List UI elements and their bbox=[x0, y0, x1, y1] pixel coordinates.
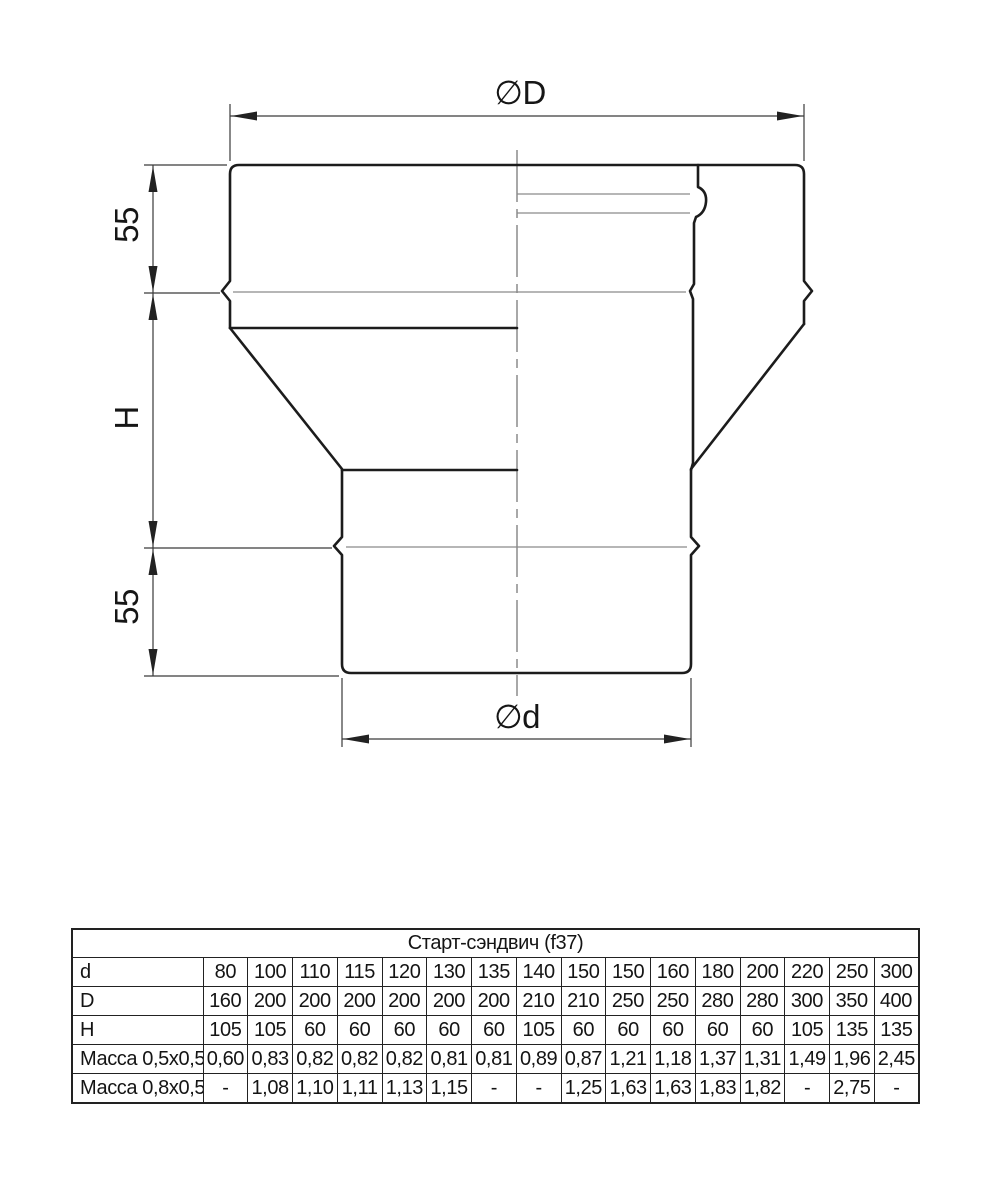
table-cell-H-2: 60 bbox=[293, 1016, 338, 1045]
arrow-outer-right bbox=[777, 112, 803, 121]
dim-label-outer-diameter: ∅D bbox=[494, 74, 546, 111]
table-cell-d-3: 115 bbox=[337, 958, 382, 987]
row-label-m05: Масса 0,5x0,5 bbox=[72, 1045, 203, 1074]
table-cell-m08-9: 1,63 bbox=[606, 1074, 651, 1104]
table-cell-H-15: 135 bbox=[874, 1016, 919, 1045]
table-cell-m08-14: 2,75 bbox=[830, 1074, 875, 1104]
arrow-outer-left bbox=[231, 112, 257, 121]
table-row-D: D160200200200200200200210210250250280280… bbox=[72, 987, 919, 1016]
table-cell-m05-4: 0,82 bbox=[382, 1045, 427, 1074]
dim-label-middle-height: H bbox=[108, 406, 145, 429]
table-cell-m08-15: - bbox=[874, 1074, 919, 1104]
seam-lines bbox=[233, 194, 690, 547]
table-cell-m05-15: 2,45 bbox=[874, 1045, 919, 1074]
table-cell-H-7: 105 bbox=[516, 1016, 561, 1045]
table-cell-d-1: 100 bbox=[248, 958, 293, 987]
table-cell-D-5: 200 bbox=[427, 987, 472, 1016]
table-cell-m08-5: 1,15 bbox=[427, 1074, 472, 1104]
table-cell-m05-3: 0,82 bbox=[337, 1045, 382, 1074]
table-row-H: H10510560606060601056060606060105135135 bbox=[72, 1016, 919, 1045]
table-cell-m05-11: 1,37 bbox=[695, 1045, 740, 1074]
table-cell-D-13: 300 bbox=[785, 987, 830, 1016]
arrow-inner-right bbox=[664, 735, 690, 744]
table-cell-d-2: 110 bbox=[293, 958, 338, 987]
datasheet-page: ∅D ∅d 55 H 55 Старт-сэндвич (f37)d801001… bbox=[0, 0, 995, 1200]
table-cell-H-10: 60 bbox=[651, 1016, 696, 1045]
table-cell-D-8: 210 bbox=[561, 987, 606, 1016]
table-cell-D-4: 200 bbox=[382, 987, 427, 1016]
inner-pipe-edge bbox=[690, 165, 706, 470]
dim-label-bottom-height: 55 bbox=[108, 589, 145, 625]
table-cell-H-8: 60 bbox=[561, 1016, 606, 1045]
table-cell-D-7: 210 bbox=[516, 987, 561, 1016]
row-label-D: D bbox=[72, 987, 203, 1016]
table-cell-m05-12: 1,31 bbox=[740, 1045, 785, 1074]
table-cell-m08-12: 1,82 bbox=[740, 1074, 785, 1104]
table-cell-m08-10: 1,63 bbox=[651, 1074, 696, 1104]
row-label-m08: Масса 0,8x0,5 bbox=[72, 1074, 203, 1104]
table-cell-m08-4: 1,13 bbox=[382, 1074, 427, 1104]
table-cell-m08-6: - bbox=[472, 1074, 517, 1104]
right-cone-edge bbox=[691, 324, 804, 469]
table-cell-d-6: 135 bbox=[472, 958, 517, 987]
table-cell-D-3: 200 bbox=[337, 987, 382, 1016]
table-cell-H-11: 60 bbox=[695, 1016, 740, 1045]
table-cell-m08-13: - bbox=[785, 1074, 830, 1104]
table-cell-m05-10: 1,18 bbox=[651, 1045, 696, 1074]
table-cell-d-11: 180 bbox=[695, 958, 740, 987]
table-cell-D-11: 280 bbox=[695, 987, 740, 1016]
table-cell-d-5: 130 bbox=[427, 958, 472, 987]
spec-table: Старт-сэндвич (f37)d80100110115120130135… bbox=[71, 928, 920, 1104]
table-cell-m05-7: 0,89 bbox=[516, 1045, 561, 1074]
left-cone-edge bbox=[230, 328, 342, 469]
table-cell-m05-2: 0,82 bbox=[293, 1045, 338, 1074]
table-cell-D-2: 200 bbox=[293, 987, 338, 1016]
table-title: Старт-сэндвич (f37) bbox=[72, 929, 919, 958]
table-cell-H-12: 60 bbox=[740, 1016, 785, 1045]
row-label-d: d bbox=[72, 958, 203, 987]
table-row-d: d801001101151201301351401501501601802002… bbox=[72, 958, 919, 987]
table-cell-m05-13: 1,49 bbox=[785, 1045, 830, 1074]
table-cell-H-4: 60 bbox=[382, 1016, 427, 1045]
arrow-h55top-down bbox=[149, 266, 158, 292]
spec-table-body: Старт-сэндвич (f37)d80100110115120130135… bbox=[72, 929, 919, 1103]
table-cell-m05-8: 0,87 bbox=[561, 1045, 606, 1074]
table-cell-m05-5: 0,81 bbox=[427, 1045, 472, 1074]
table-cell-m05-0: 0,60 bbox=[203, 1045, 248, 1074]
table-cell-D-12: 280 bbox=[740, 987, 785, 1016]
table-cell-D-14: 350 bbox=[830, 987, 875, 1016]
table-title-row: Старт-сэндвич (f37) bbox=[72, 929, 919, 958]
table-cell-H-5: 60 bbox=[427, 1016, 472, 1045]
table-cell-D-6: 200 bbox=[472, 987, 517, 1016]
table-cell-d-15: 300 bbox=[874, 958, 919, 987]
row-label-H: H bbox=[72, 1016, 203, 1045]
table-cell-H-3: 60 bbox=[337, 1016, 382, 1045]
table-row-m08: Масса 0,8x0,5-1,081,101,111,131,15--1,25… bbox=[72, 1074, 919, 1104]
technical-drawing: ∅D ∅d 55 H 55 bbox=[0, 0, 995, 880]
table-cell-D-10: 250 bbox=[651, 987, 696, 1016]
arrow-hmid-down bbox=[149, 521, 158, 547]
table-cell-d-7: 140 bbox=[516, 958, 561, 987]
table-cell-m08-2: 1,10 bbox=[293, 1074, 338, 1104]
table-cell-H-6: 60 bbox=[472, 1016, 517, 1045]
arrow-h55bot-up bbox=[149, 549, 158, 575]
table-row-m05: Масса 0,5x0,50,600,830,820,820,820,810,8… bbox=[72, 1045, 919, 1074]
arrow-h55bot-down bbox=[149, 649, 158, 675]
table-cell-m08-1: 1,08 bbox=[248, 1074, 293, 1104]
table-cell-d-0: 80 bbox=[203, 958, 248, 987]
table-cell-H-0: 105 bbox=[203, 1016, 248, 1045]
table-cell-H-1: 105 bbox=[248, 1016, 293, 1045]
table-cell-m05-6: 0,81 bbox=[472, 1045, 517, 1074]
table-cell-d-10: 160 bbox=[651, 958, 696, 987]
table-cell-D-0: 160 bbox=[203, 987, 248, 1016]
table-cell-D-15: 400 bbox=[874, 987, 919, 1016]
table-cell-D-1: 200 bbox=[248, 987, 293, 1016]
table-cell-d-8: 150 bbox=[561, 958, 606, 987]
table-cell-m05-14: 1,96 bbox=[830, 1045, 875, 1074]
table-cell-m05-1: 0,83 bbox=[248, 1045, 293, 1074]
table-cell-m08-11: 1,83 bbox=[695, 1074, 740, 1104]
table-cell-D-9: 250 bbox=[606, 987, 651, 1016]
dim-label-top-height: 55 bbox=[108, 207, 145, 243]
table-cell-m08-3: 1,11 bbox=[337, 1074, 382, 1104]
arrow-hmid-up bbox=[149, 294, 158, 320]
table-cell-H-14: 135 bbox=[830, 1016, 875, 1045]
table-cell-d-4: 120 bbox=[382, 958, 427, 987]
table-cell-d-9: 150 bbox=[606, 958, 651, 987]
table-cell-H-9: 60 bbox=[606, 1016, 651, 1045]
table-cell-d-13: 220 bbox=[785, 958, 830, 987]
table-cell-m08-0: - bbox=[203, 1074, 248, 1104]
table-cell-d-14: 250 bbox=[830, 958, 875, 987]
table-cell-m08-8: 1,25 bbox=[561, 1074, 606, 1104]
dim-label-inner-diameter: ∅d bbox=[494, 698, 540, 735]
table-cell-H-13: 105 bbox=[785, 1016, 830, 1045]
table-cell-m05-9: 1,21 bbox=[606, 1045, 651, 1074]
table-cell-d-12: 200 bbox=[740, 958, 785, 987]
arrow-inner-left bbox=[343, 735, 369, 744]
arrow-h55top-up bbox=[149, 166, 158, 192]
table-cell-m08-7: - bbox=[516, 1074, 561, 1104]
